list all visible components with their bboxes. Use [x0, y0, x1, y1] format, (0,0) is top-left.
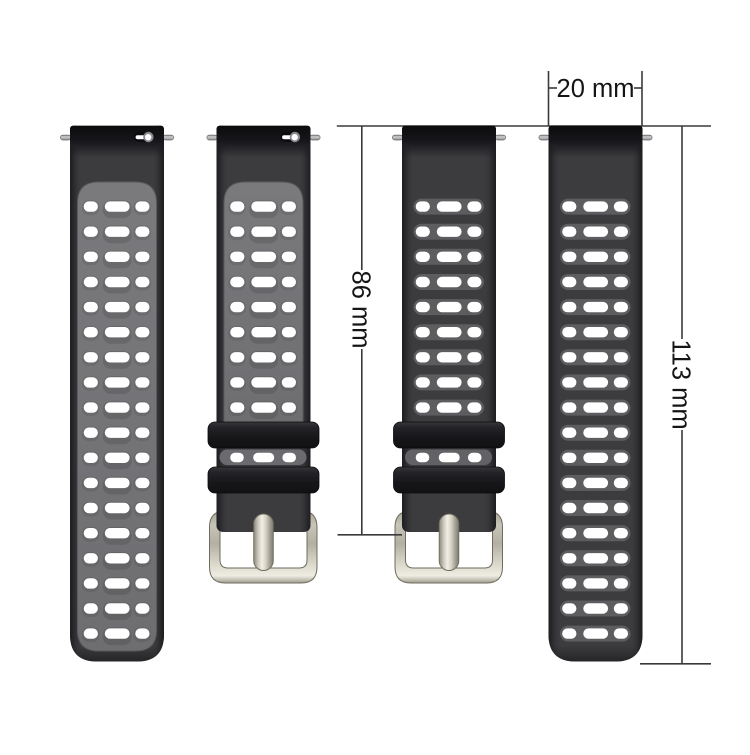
svg-text:86 mm: 86 mm	[346, 271, 374, 349]
svg-text:113 mm: 113 mm	[667, 339, 695, 429]
svg-text:20 mm: 20 mm	[557, 75, 635, 103]
